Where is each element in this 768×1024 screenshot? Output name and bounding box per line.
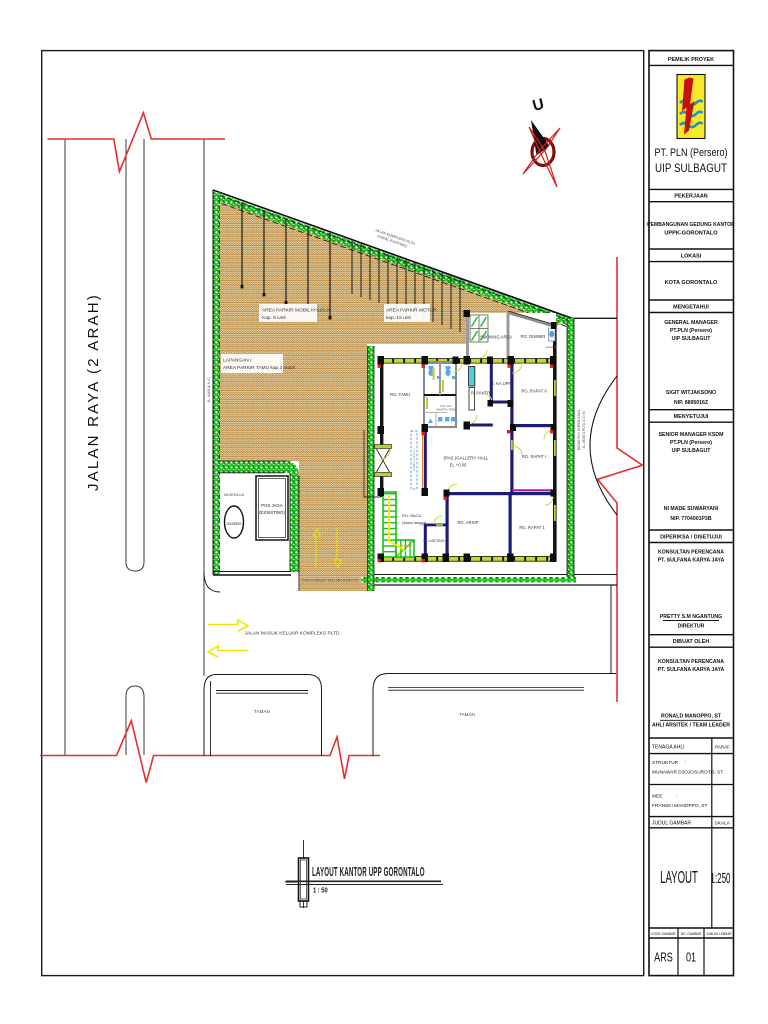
svg-text:1:250: 1:250 xyxy=(711,871,731,887)
svg-text:JALAN MASUK KELUAR KOMPLEKS PL: JALAN MASUK KELUAR KOMPLEKS PLTD xyxy=(245,631,340,637)
svg-text:PT. SULFANA KARYA JAYA: PT. SULFANA KARYA JAYA xyxy=(658,667,725,673)
svg-text:KONSULTAN PERENCANA: KONSULTAN PERENCANA xyxy=(658,659,724,665)
svg-text:POS JAGA: POS JAGA xyxy=(261,503,283,508)
svg-text:LOKASI: LOKASI xyxy=(681,254,702,260)
svg-text:DIBUAT OLEH: DIBUAT OLEH xyxy=(673,639,710,645)
svg-text:UPPK-GORONTALO: UPPK-GORONTALO xyxy=(664,231,718,237)
svg-text:DIREKTUR: DIREKTUR xyxy=(678,624,705,630)
svg-text:PEMBANGUNAN GEDUNG KANTOR: PEMBANGUNAN GEDUNG KANTOR xyxy=(647,222,735,228)
svg-text:UIP SULBAGUT: UIP SULBAGUT xyxy=(672,448,712,454)
svg-text:EL +0.00: EL +0.00 xyxy=(450,463,467,468)
svg-text:PEMILIK PROYEK: PEMILIK PROYEK xyxy=(668,57,714,63)
svg-text:SKALA: SKALA xyxy=(715,821,731,827)
svg-text:(PAS.)GALLERY HALL: (PAS.)GALLERY HALL xyxy=(444,456,489,461)
svg-text:PARAF: PARAF xyxy=(715,745,730,750)
svg-text:AREA PARKIR MOBIL KHUSUS: AREA PARKIR MOBIL KHUSUS xyxy=(262,308,331,314)
svg-text:RG. BACA: RG. BACA xyxy=(402,513,421,518)
svg-text:JUMLAH LEMBAR: JUMLAH LEMBAR xyxy=(706,932,732,936)
svg-text:PT. SULFANA KARYA JAYA: PT. SULFANA KARYA JAYA xyxy=(658,558,725,564)
svg-text:MENYETUJUI: MENYETUJUI xyxy=(674,414,709,420)
svg-text:FRANSKI MANOPPO, ST: FRANSKI MANOPPO, ST xyxy=(652,803,708,809)
svg-text:NIP. 8895016Z: NIP. 8895016Z xyxy=(674,400,709,406)
svg-text:BATAS PLN GORONTALO: BATAS PLN GORONTALO xyxy=(577,409,581,450)
svg-text:RG. ARSIP: RG. ARSIP xyxy=(458,520,479,525)
svg-text:TERAS DEPAN: TERAS DEPAN xyxy=(367,445,371,466)
svg-text:UIP SULBAGUT: UIP SULBAGUT xyxy=(672,336,712,342)
svg-text:PT.PLN (Persero): PT.PLN (Persero) xyxy=(670,328,712,334)
svg-text:ARS: ARS xyxy=(654,951,673,965)
svg-text:(EXSISTING): (EXSISTING) xyxy=(259,510,285,515)
svg-text:PT.PLN (Persero): PT.PLN (Persero) xyxy=(670,440,712,446)
svg-text:JL. AKSES PLTD 4.00 M: JL. AKSES PLTD 4.00 M xyxy=(582,411,586,448)
svg-text:GAZEBO: GAZEBO xyxy=(227,522,242,526)
svg-text:SMOKING AREA: SMOKING AREA xyxy=(480,335,512,340)
svg-text:(Akses tangga): (Akses tangga) xyxy=(402,521,426,525)
svg-text:PT. PLN (Persero): PT. PLN (Persero) xyxy=(654,147,727,159)
svg-text:PRETTY S.M NGANTUNG: PRETTY S.M NGANTUNG xyxy=(660,614,722,620)
svg-text:R. LAKTASI: R. LAKTASI xyxy=(423,538,444,543)
svg-text:AHLI ARSITEK / TEAM LEADER: AHLI ARSITEK / TEAM LEADER xyxy=(652,723,730,729)
svg-text:kap. 15 unit: kap. 15 unit xyxy=(386,315,411,321)
svg-text:SIGIT WITJAKSONO: SIGIT WITJAKSONO xyxy=(666,390,716,396)
svg-text:RG. RAPAT I: RG. RAPAT I xyxy=(522,454,546,459)
svg-text:SENIOR MANAGER KSDM: SENIOR MANAGER KSDM xyxy=(659,432,724,438)
svg-text:Kap. 6 Unit: Kap. 6 Unit xyxy=(262,315,286,321)
svg-text:01: 01 xyxy=(686,951,696,965)
svg-text:KONSULTAN PERENCANA: KONSULTAN PERENCANA xyxy=(658,550,724,556)
svg-text:WANITA / PRIA: WANITA / PRIA xyxy=(436,408,455,412)
svg-text:KODE GAMBAR: KODE GAMBAR xyxy=(652,932,676,936)
svg-text:LAPANGAN /: LAPANGAN / xyxy=(223,358,252,364)
svg-text:RG. RAPAT 1: RG. RAPAT 1 xyxy=(519,525,545,530)
svg-text:JL. MASUK 6.00: JL. MASUK 6.00 xyxy=(207,377,211,402)
svg-text:AREA PARKIR TAMU kap 3 mobil: AREA PARKIR TAMU kap 3 mobil xyxy=(223,365,295,371)
svg-text:LAYOUT KANTOR UPP GORONTALO: LAYOUT KANTOR UPP GORONTALO xyxy=(312,866,425,880)
svg-text:TAMAN: TAMAN xyxy=(459,712,475,717)
svg-text:PINTU MASUK KELUAR KANTOR: PINTU MASUK KELUAR KANTOR xyxy=(302,579,358,583)
svg-text:TANGGA: TANGGA xyxy=(398,544,413,548)
svg-text:JUDUL GAMBAR: JUDUL GAMBAR xyxy=(652,821,691,827)
svg-text:1 : 50: 1 : 50 xyxy=(313,887,328,895)
svg-text:RG. RAPAT II: RG. RAPAT II xyxy=(521,389,546,394)
svg-text:TENAGA AHLI: TENAGA AHLI xyxy=(652,745,685,751)
svg-text:LAYOUT: LAYOUT xyxy=(660,867,698,887)
svg-text:TAMAN: TAMAN xyxy=(254,709,270,714)
svg-text:R. KA UPP: R. KA UPP xyxy=(491,381,512,386)
svg-text:NIP. 7704001P3B: NIP. 7704001P3B xyxy=(670,516,711,522)
svg-text:UIP SULBAGUT: UIP SULBAGUT xyxy=(655,162,727,175)
svg-text:R. PANTRY: R. PANTRY xyxy=(471,391,493,396)
svg-text:RG. DINNER: RG. DINNER xyxy=(521,334,546,339)
svg-text:KOTA GORONTALO: KOTA GORONTALO xyxy=(665,280,718,286)
svg-text:NO. GAMBAR: NO. GAMBAR xyxy=(681,932,702,936)
svg-text:RG. TAMU: RG. TAMU xyxy=(390,392,410,397)
svg-text:MUNAWAR DJOJOSUROTO, ST: MUNAWAR DJOJOSUROTO, ST xyxy=(652,770,723,776)
svg-text:DIPERIKSA / DISETUJUI: DIPERIKSA / DISETUJUI xyxy=(660,534,722,540)
svg-text:PEKERJAAN: PEKERJAAN xyxy=(674,194,707,200)
svg-text:MEE :: MEE : xyxy=(652,794,677,800)
svg-text:NI MADE SUWARYANI: NI MADE SUWARYANI xyxy=(664,506,719,512)
svg-text:STRUKTUR :: STRUKTUR : xyxy=(652,760,686,766)
svg-text:RAMP LANTAI 2: RAMP LANTAI 2 xyxy=(412,449,416,472)
svg-text:GENERAL MANAGER: GENERAL MANAGER xyxy=(664,320,718,326)
svg-text:SELASAR 1.50: SELASAR 1.50 xyxy=(368,378,372,401)
svg-text:MENGETAHUI: MENGETAHUI xyxy=(673,304,709,310)
svg-text:wastafel: wastafel xyxy=(545,345,556,349)
svg-text:JALAN RAYA (2 ARAH): JALAN RAYA (2 ARAH) xyxy=(85,293,102,491)
svg-text:RONALD MANOPPO, ST: RONALD MANOPPO, ST xyxy=(661,714,722,720)
svg-text:AREA PARKIR MOTOR: AREA PARKIR MOTOR xyxy=(386,308,437,314)
svg-text:MUSHOLLA: MUSHOLLA xyxy=(224,493,244,497)
